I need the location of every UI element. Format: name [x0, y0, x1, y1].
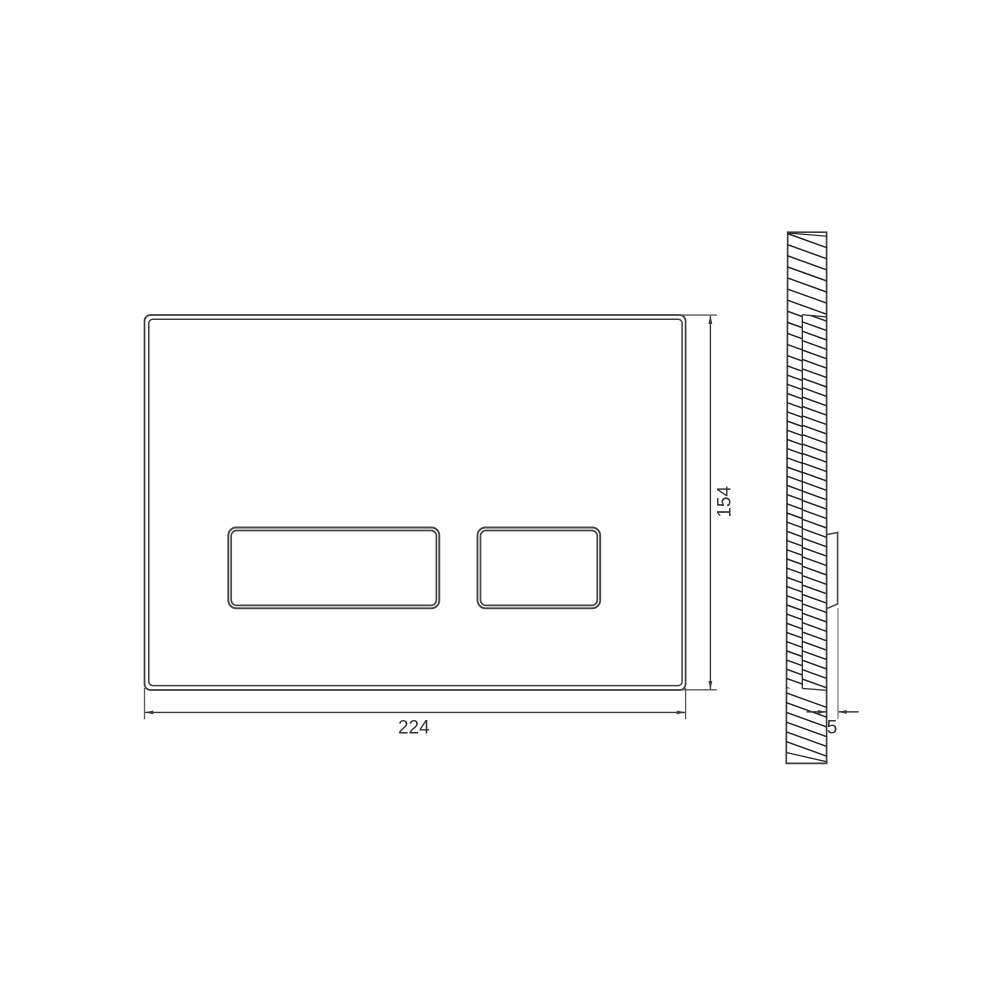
svg-text:224: 224	[398, 718, 430, 739]
svg-text:154: 154	[715, 486, 736, 518]
svg-text:5: 5	[827, 717, 838, 738]
